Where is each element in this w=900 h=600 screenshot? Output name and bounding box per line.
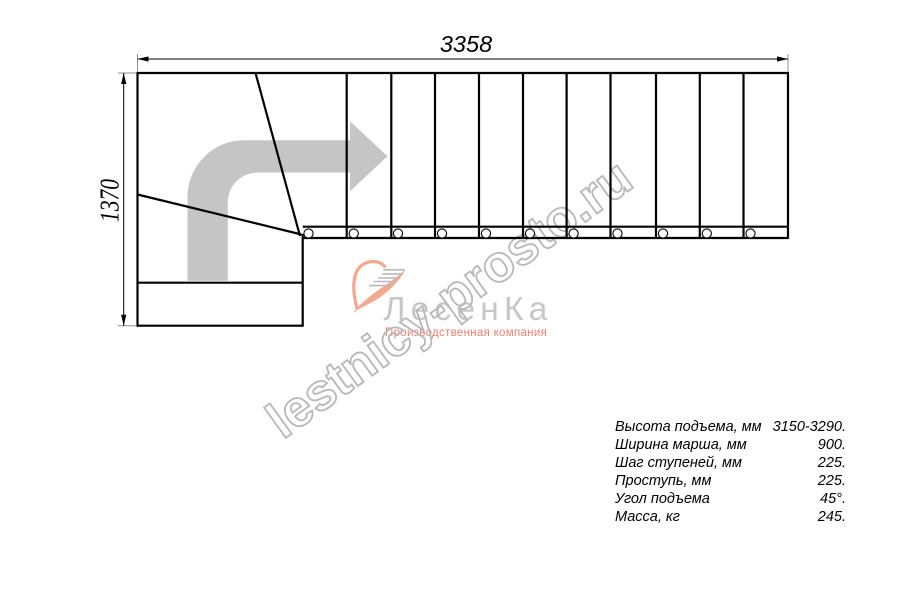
svg-text:3358: 3358 bbox=[440, 31, 492, 57]
svg-text:1370: 1370 bbox=[95, 179, 125, 222]
svg-text:lestnicy-prosto.ru: lestnicy-prosto.ru bbox=[256, 147, 643, 448]
